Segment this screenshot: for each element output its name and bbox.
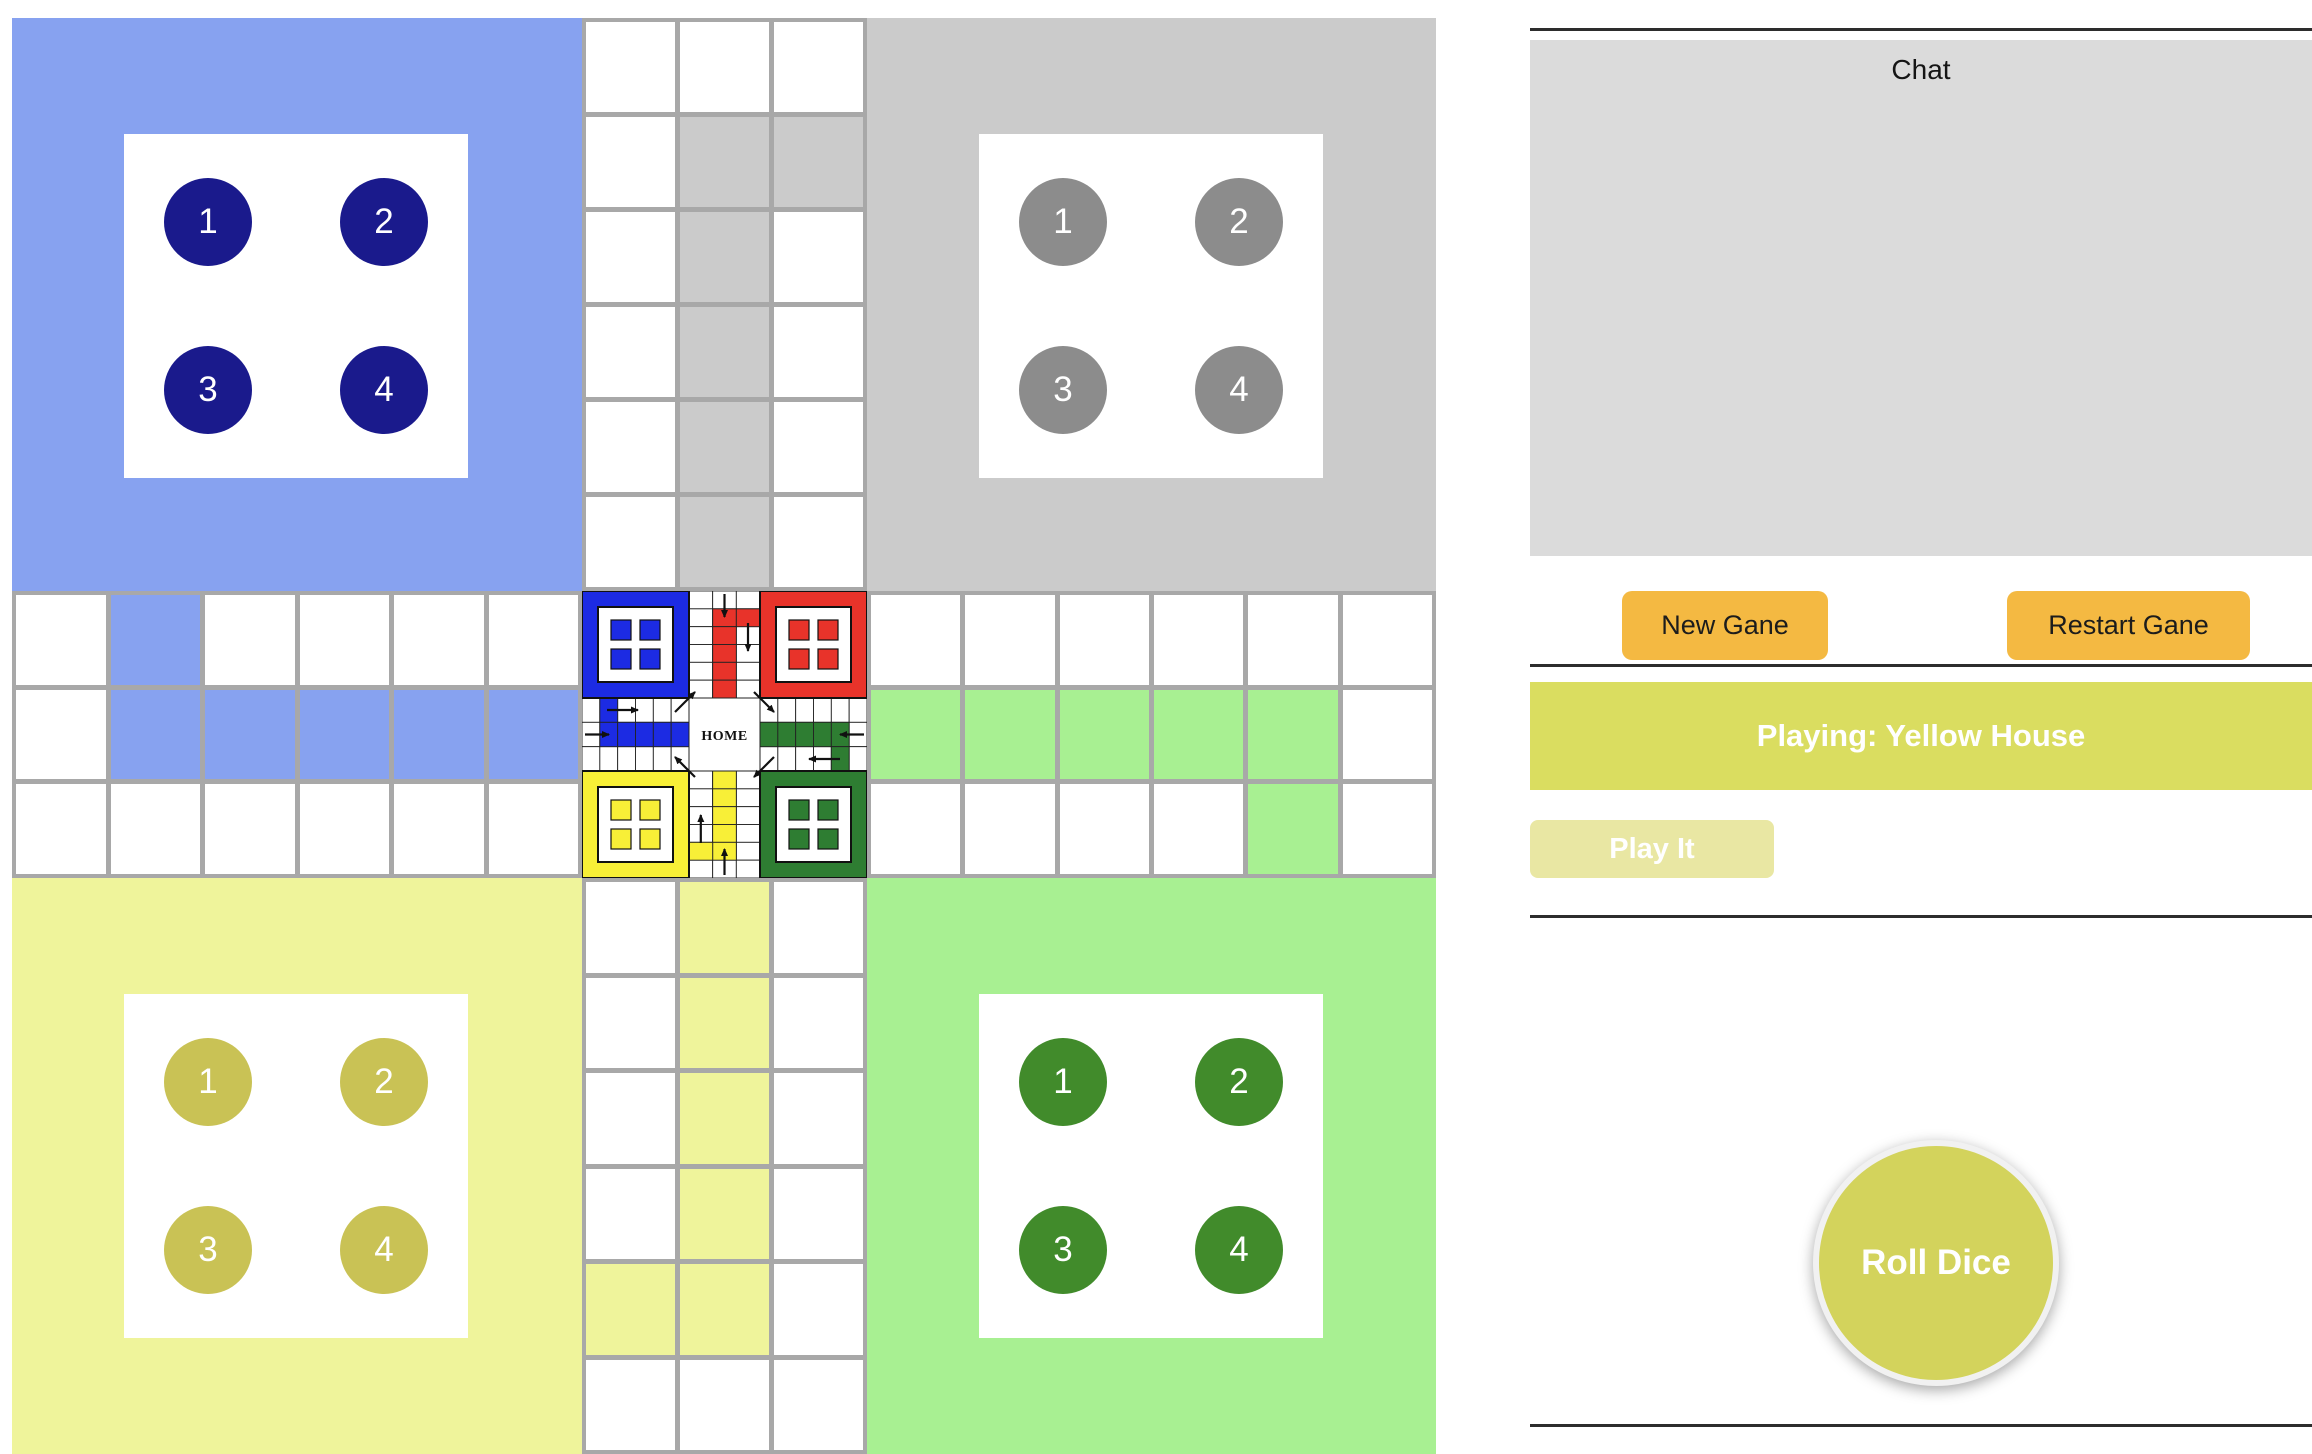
board-cell [205, 690, 295, 780]
board-cell [1154, 595, 1243, 685]
gray-piece-2[interactable]: 2 [1195, 178, 1283, 266]
board-cell [586, 882, 675, 973]
board-cell [586, 978, 675, 1069]
side-panel: Chat New Gane Restart Gane Playing: Yell… [1530, 0, 2312, 1454]
board-cell [680, 22, 769, 112]
green-piece-1[interactable]: 1 [1019, 1038, 1107, 1126]
board-cell [1060, 595, 1149, 685]
board-cell [489, 690, 579, 780]
board-cell [586, 1169, 675, 1260]
board-cell [680, 1073, 769, 1164]
blue-piece-3[interactable]: 3 [164, 346, 252, 434]
board-cell [1343, 595, 1432, 685]
board-cell [680, 978, 769, 1069]
board-cell [300, 690, 390, 780]
gray-piece-3[interactable]: 3 [1019, 346, 1107, 434]
board-cell [680, 882, 769, 973]
play-it-button[interactable]: Play It [1530, 820, 1774, 878]
board-cell [16, 690, 106, 780]
chat-title: Chat [1530, 54, 2312, 86]
blue-piece-1[interactable]: 1 [164, 178, 252, 266]
gray-home-quadrant: 1 2 3 4 [867, 18, 1436, 591]
yellow-piece-2[interactable]: 2 [340, 1038, 428, 1126]
board-cell [586, 1264, 675, 1355]
board-cell [774, 402, 863, 492]
board-cell [1060, 690, 1149, 780]
divider [1530, 1424, 2312, 1427]
green-piece-2[interactable]: 2 [1195, 1038, 1283, 1126]
blue-piece-2[interactable]: 2 [340, 178, 428, 266]
board-cell [680, 212, 769, 302]
board-cell [1060, 784, 1149, 874]
board-cell [111, 595, 201, 685]
yellow-home-quadrant: 1 2 3 4 [12, 878, 582, 1454]
board-cell [871, 595, 960, 685]
board-cell [774, 22, 863, 112]
board-cell [774, 882, 863, 973]
divider [1530, 915, 2312, 918]
yellow-piece-4[interactable]: 4 [340, 1206, 428, 1294]
board-cell [586, 117, 675, 207]
board-cell [586, 1073, 675, 1164]
board-cell [16, 784, 106, 874]
board-cell [586, 307, 675, 397]
board-cell [586, 1360, 675, 1451]
blue-home-quadrant: 1 2 3 4 [12, 18, 582, 591]
divider [1530, 28, 2312, 31]
ludo-board: 1 2 3 4 1 2 3 4 1 2 3 4 1 [12, 18, 1436, 1454]
board-cell [394, 690, 484, 780]
board-cell [300, 595, 390, 685]
green-piece-4[interactable]: 4 [1195, 1206, 1283, 1294]
home-image-svg: HOME [582, 591, 867, 878]
yellow-piece-3[interactable]: 3 [164, 1206, 252, 1294]
board-cell [774, 1169, 863, 1260]
board-cell [680, 1264, 769, 1355]
board-cell [1343, 784, 1432, 874]
board-cell [586, 497, 675, 587]
board-cell [774, 117, 863, 207]
board-cell [965, 784, 1054, 874]
board-cell [1154, 784, 1243, 874]
board-cell [680, 1169, 769, 1260]
board-cell [774, 497, 863, 587]
board-cell [774, 212, 863, 302]
board-cell [680, 402, 769, 492]
restart-game-button[interactable]: Restart Gane [2007, 591, 2250, 660]
status-banner: Playing: Yellow House [1530, 682, 2312, 790]
green-home-box: 1 2 3 4 [979, 994, 1323, 1338]
board-cell [111, 690, 201, 780]
board-cell [300, 784, 390, 874]
board-cell [680, 497, 769, 587]
board-cell [680, 1360, 769, 1451]
board-cell [774, 1264, 863, 1355]
board-cell [586, 212, 675, 302]
board-cell [680, 307, 769, 397]
roll-dice-button[interactable]: Roll Dice [1813, 1140, 2059, 1386]
board-cell [586, 22, 675, 112]
board-cell [1248, 595, 1337, 685]
divider [1530, 664, 2312, 667]
board-cell [489, 784, 579, 874]
track-top [582, 18, 867, 591]
board-cell [489, 595, 579, 685]
board-cell [394, 595, 484, 685]
board-cell [680, 117, 769, 207]
board-cell [205, 595, 295, 685]
board-cell [586, 402, 675, 492]
track-left [12, 591, 582, 878]
yellow-piece-1[interactable]: 1 [164, 1038, 252, 1126]
new-game-button[interactable]: New Gane [1622, 591, 1828, 660]
board-cell [205, 784, 295, 874]
board-cell [774, 978, 863, 1069]
gray-home-box: 1 2 3 4 [979, 134, 1323, 478]
blue-home-box: 1 2 3 4 [124, 134, 468, 478]
board-cell [774, 1073, 863, 1164]
board-cell [1248, 784, 1337, 874]
blue-piece-4[interactable]: 4 [340, 346, 428, 434]
ludo-app: 1 2 3 4 1 2 3 4 1 2 3 4 1 [0, 0, 2312, 1454]
board-cell [774, 307, 863, 397]
chat-panel: Chat [1530, 40, 2312, 556]
home-label: HOME [701, 729, 747, 744]
board-cell [774, 1360, 863, 1451]
board-cell [16, 595, 106, 685]
yellow-home-box: 1 2 3 4 [124, 994, 468, 1338]
gray-piece-1[interactable]: 1 [1019, 178, 1107, 266]
board-cell [1248, 690, 1337, 780]
gray-piece-4[interactable]: 4 [1195, 346, 1283, 434]
track-bottom [582, 878, 867, 1454]
board-cell [871, 784, 960, 874]
board-cell [1343, 690, 1432, 780]
green-home-quadrant: 1 2 3 4 [867, 878, 1436, 1454]
track-right [867, 591, 1436, 878]
center-home-image: HOME [582, 591, 867, 878]
board-cell [111, 784, 201, 874]
board-cell [965, 595, 1054, 685]
green-piece-3[interactable]: 3 [1019, 1206, 1107, 1294]
board-cell [871, 690, 960, 780]
board-cell [394, 784, 484, 874]
board-cell [965, 690, 1054, 780]
board-cell [1154, 690, 1243, 780]
